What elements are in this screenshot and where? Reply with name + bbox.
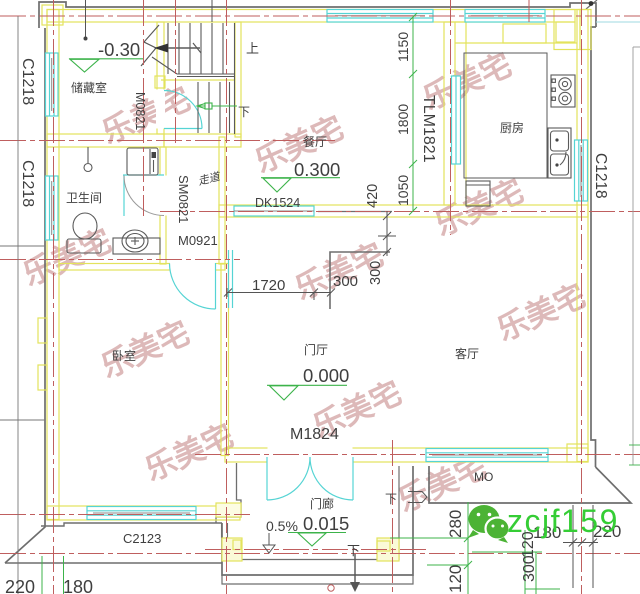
svg-text:SM0821: SM0821 bbox=[176, 175, 191, 223]
svg-text:TLM1821: TLM1821 bbox=[420, 95, 437, 163]
svg-text:厨房: 厨房 bbox=[500, 120, 524, 135]
svg-text:-0.30: -0.30 bbox=[98, 39, 140, 60]
svg-text:储藏室: 储藏室 bbox=[71, 80, 107, 95]
svg-text:1050: 1050 bbox=[395, 175, 411, 206]
svg-text:0.015: 0.015 bbox=[303, 513, 349, 534]
svg-text:0.5%: 0.5% bbox=[266, 518, 298, 534]
svg-text:1720: 1720 bbox=[252, 277, 285, 294]
svg-text:C1218: C1218 bbox=[19, 160, 36, 207]
svg-text:M1824: M1824 bbox=[290, 426, 339, 443]
svg-text:卧室: 卧室 bbox=[112, 348, 136, 363]
svg-text:300: 300 bbox=[521, 555, 538, 582]
svg-text:180: 180 bbox=[63, 577, 93, 594]
svg-text:0.000: 0.000 bbox=[303, 365, 349, 386]
svg-text:300: 300 bbox=[333, 273, 358, 290]
svg-text:门厅: 门厅 bbox=[304, 342, 328, 357]
svg-text:C1218: C1218 bbox=[592, 153, 609, 199]
svg-text:餐厅: 餐厅 bbox=[303, 134, 327, 149]
svg-text:上: 上 bbox=[246, 41, 259, 56]
svg-text:C1218: C1218 bbox=[19, 58, 36, 105]
svg-text:C2123: C2123 bbox=[123, 531, 161, 546]
svg-text:0.300: 0.300 bbox=[294, 159, 340, 180]
svg-text:1150: 1150 bbox=[395, 32, 411, 62]
svg-text:220: 220 bbox=[5, 577, 35, 594]
svg-text:1800: 1800 bbox=[395, 104, 411, 135]
svg-text:300: 300 bbox=[368, 261, 384, 285]
svg-text:客厅: 客厅 bbox=[455, 346, 479, 361]
svg-text:M0821: M0821 bbox=[133, 92, 147, 130]
svg-text:门廊: 门廊 bbox=[310, 496, 334, 511]
svg-text:下: 下 bbox=[238, 105, 250, 119]
svg-text:zcjf159: zcjf159 bbox=[507, 503, 619, 539]
svg-text:280: 280 bbox=[446, 510, 465, 538]
svg-text:DK1524: DK1524 bbox=[255, 196, 300, 210]
svg-text:420: 420 bbox=[365, 184, 381, 208]
svg-text:卫生间: 卫生间 bbox=[66, 191, 102, 205]
svg-text:M0921: M0921 bbox=[178, 233, 218, 248]
svg-text:120: 120 bbox=[446, 565, 465, 593]
svg-text:下: 下 bbox=[347, 543, 360, 558]
svg-text:MO: MO bbox=[474, 470, 493, 484]
svg-text:下: 下 bbox=[385, 492, 397, 506]
